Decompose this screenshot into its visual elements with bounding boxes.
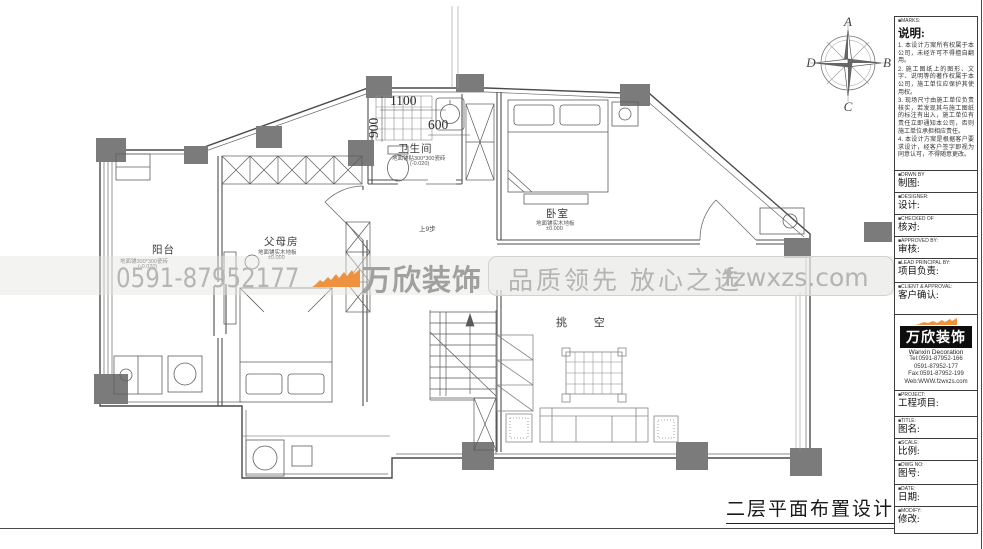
logo-brand-mark: 万欣装饰: [900, 326, 972, 348]
field-project: ■PROJECT: 工程项目:: [895, 391, 977, 417]
note-item: 2. 施工图纸上的图形、文字、说明等的著作权属于本公司，施工单位应保护其使用权。: [898, 67, 974, 97]
field-dwg-no: ■DWG NO: 图号:: [895, 461, 977, 485]
staircase: [430, 310, 496, 454]
notes-section: ■MARKS: 说明: 1. 本设计方案所有权属于本公司，未经许可不得擅自翻用。…: [895, 17, 977, 171]
room-label-void: 挑 空: [556, 314, 617, 330]
field-principal: ■LEAD PRINCIPAL BY: 项目负责:: [895, 259, 977, 283]
title-block-panel: ■MARKS: 说明: 1. 本设计方案所有权属于本公司，未经许可不得擅自翻用。…: [894, 16, 978, 534]
field-approved: ■APPROVED BY: 审核:: [895, 237, 977, 259]
field-client-approval: ■CLIENT & APPROVAL: 客户确认:: [895, 283, 977, 315]
compass-south-label: C: [844, 99, 853, 112]
watermark-website: fzwxzs.com: [724, 263, 869, 292]
watermark-slogan: 品质领先 放心之选: [508, 261, 742, 297]
room-level-bathroom: (-0.020): [410, 161, 429, 167]
field-drawn-by: ■DRWN BY 制图:: [895, 171, 977, 193]
brand-swoosh-icon: [310, 260, 364, 290]
compass-north-label: A: [843, 14, 852, 29]
note-item: 3. 现场尺寸由施工单位负责核实，若发现其与施工图纸的标注有出入，施工单位有责任…: [898, 98, 974, 136]
field-scale: ■SCALE: 比例:: [895, 439, 977, 461]
logo-tel1: Tel:0591-87952-166: [898, 356, 974, 364]
company-logo-block: 万欣装饰 Wanxin Decoration Tel:0591-87952-16…: [895, 315, 977, 391]
compass-east-label: B: [883, 55, 891, 70]
room-label-balcony: 阳台: [152, 242, 175, 257]
notes-tag: ■MARKS:: [898, 18, 974, 24]
compass-rose: A B C D: [806, 14, 892, 112]
field-checked: ■CHECKED OF 核对:: [895, 215, 977, 237]
field-designer: ■DESIGNER: 设计:: [895, 193, 977, 215]
logo-company-name: Wanxin Decoration: [898, 349, 974, 356]
logo-web: Web:WWW.fzwxzs.com: [898, 379, 974, 387]
note-item: 1. 本设计方案所有权属于本公司，未经许可不得擅自翻用。: [898, 43, 974, 66]
drawing-title: 二层平面布置设计图: [726, 494, 915, 524]
watermark-phone: 0591-87952177: [116, 263, 300, 294]
compass-west-label: D: [806, 55, 816, 70]
room-label-parents: 父母房: [264, 234, 299, 249]
logo-fax: Fax:0591-87952-199: [898, 371, 974, 379]
field-title: ■TITLE: 图名:: [895, 417, 977, 439]
stair-note: 上9步: [419, 223, 436, 233]
dimension-1100: 1100: [390, 93, 417, 109]
room-level-bedroom: ±0.000: [546, 226, 563, 232]
watermark-brand: 万欣装饰: [362, 257, 482, 299]
logo-tel2: 0591-87952-177: [898, 364, 974, 372]
sheet-frame-right-line: [981, 0, 982, 549]
logo-swoosh-icon: [913, 317, 959, 326]
void-lower-floor-furniture: [497, 335, 678, 442]
dimension-600: 600: [428, 117, 448, 133]
field-modify: ■MODIFY: 修改:: [895, 507, 977, 533]
dimension-900: 900: [366, 118, 382, 138]
notes-title: 说明:: [898, 25, 974, 41]
sheet-frame-bottom-line: [0, 528, 894, 529]
field-date: ■DATE: 日期:: [895, 485, 977, 507]
note-item: 4. 本设计方案是根据客户要求设计，经客户签字即视为同意认可，不得随意更改。: [898, 137, 974, 160]
sliding-door: [398, 180, 456, 184]
